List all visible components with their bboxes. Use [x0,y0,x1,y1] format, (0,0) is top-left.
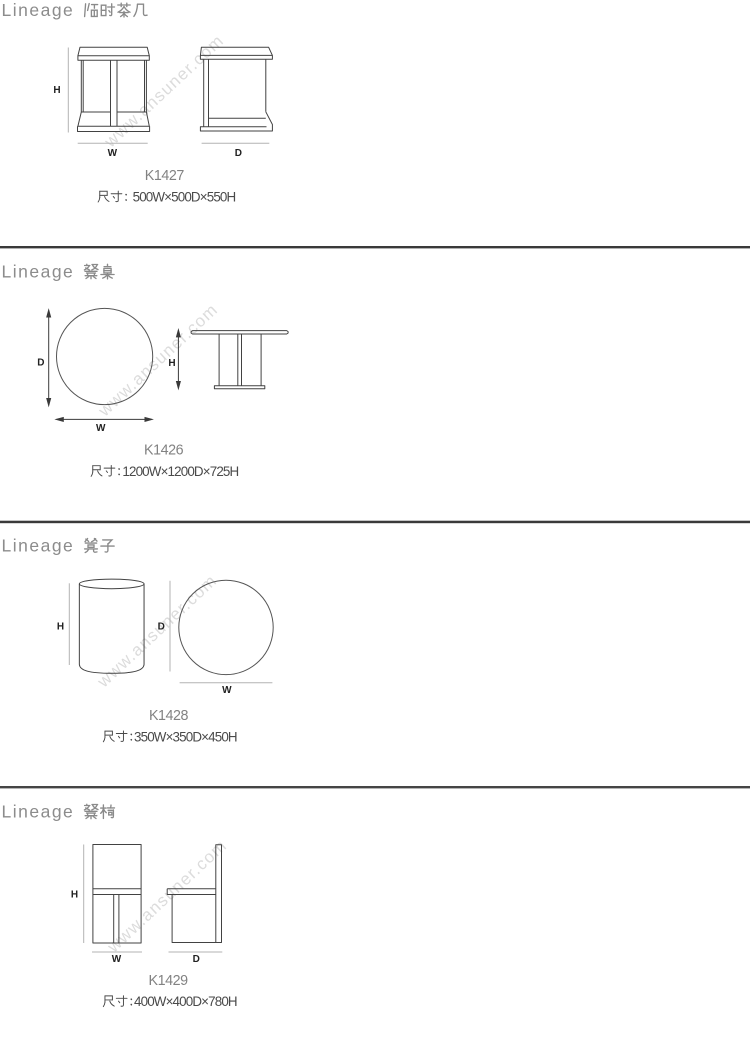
svg-text:1200W×1200D×725H: 1200W×1200D×725H [122,464,238,479]
svg-text:H: H [71,889,78,900]
svg-text:W: W [96,423,106,434]
svg-text:H: H [57,622,64,633]
svg-text:Lineage: Lineage [2,536,75,556]
svg-text:D: D [193,954,200,965]
svg-text:W: W [108,148,118,159]
svg-text:D: D [37,358,44,369]
svg-text:www.ansuner.com: www.ansuner.com [94,300,222,421]
svg-text:D: D [235,148,242,159]
svg-text:K1427: K1427 [145,168,185,184]
svg-text:D: D [158,621,165,632]
svg-text:Lineage: Lineage [2,262,75,282]
svg-text:K1426: K1426 [144,442,184,458]
svg-text:Lineage: Lineage [2,0,75,20]
svg-text:H: H [53,85,60,96]
svg-text:H: H [168,358,175,369]
svg-text:www.ansuner.com: www.ansuner.com [103,836,231,957]
svg-text:400W×400D×780H: 400W×400D×780H [134,994,237,1009]
svg-text:K1428: K1428 [149,708,189,724]
svg-text:K1429: K1429 [149,973,189,989]
svg-text:W: W [112,954,122,965]
svg-text:W: W [222,685,232,696]
svg-text:Lineage: Lineage [2,802,75,822]
svg-text:500W×500D×550H: 500W×500D×550H [133,190,236,205]
svg-text:350W×350D×450H: 350W×350D×450H [134,729,237,744]
